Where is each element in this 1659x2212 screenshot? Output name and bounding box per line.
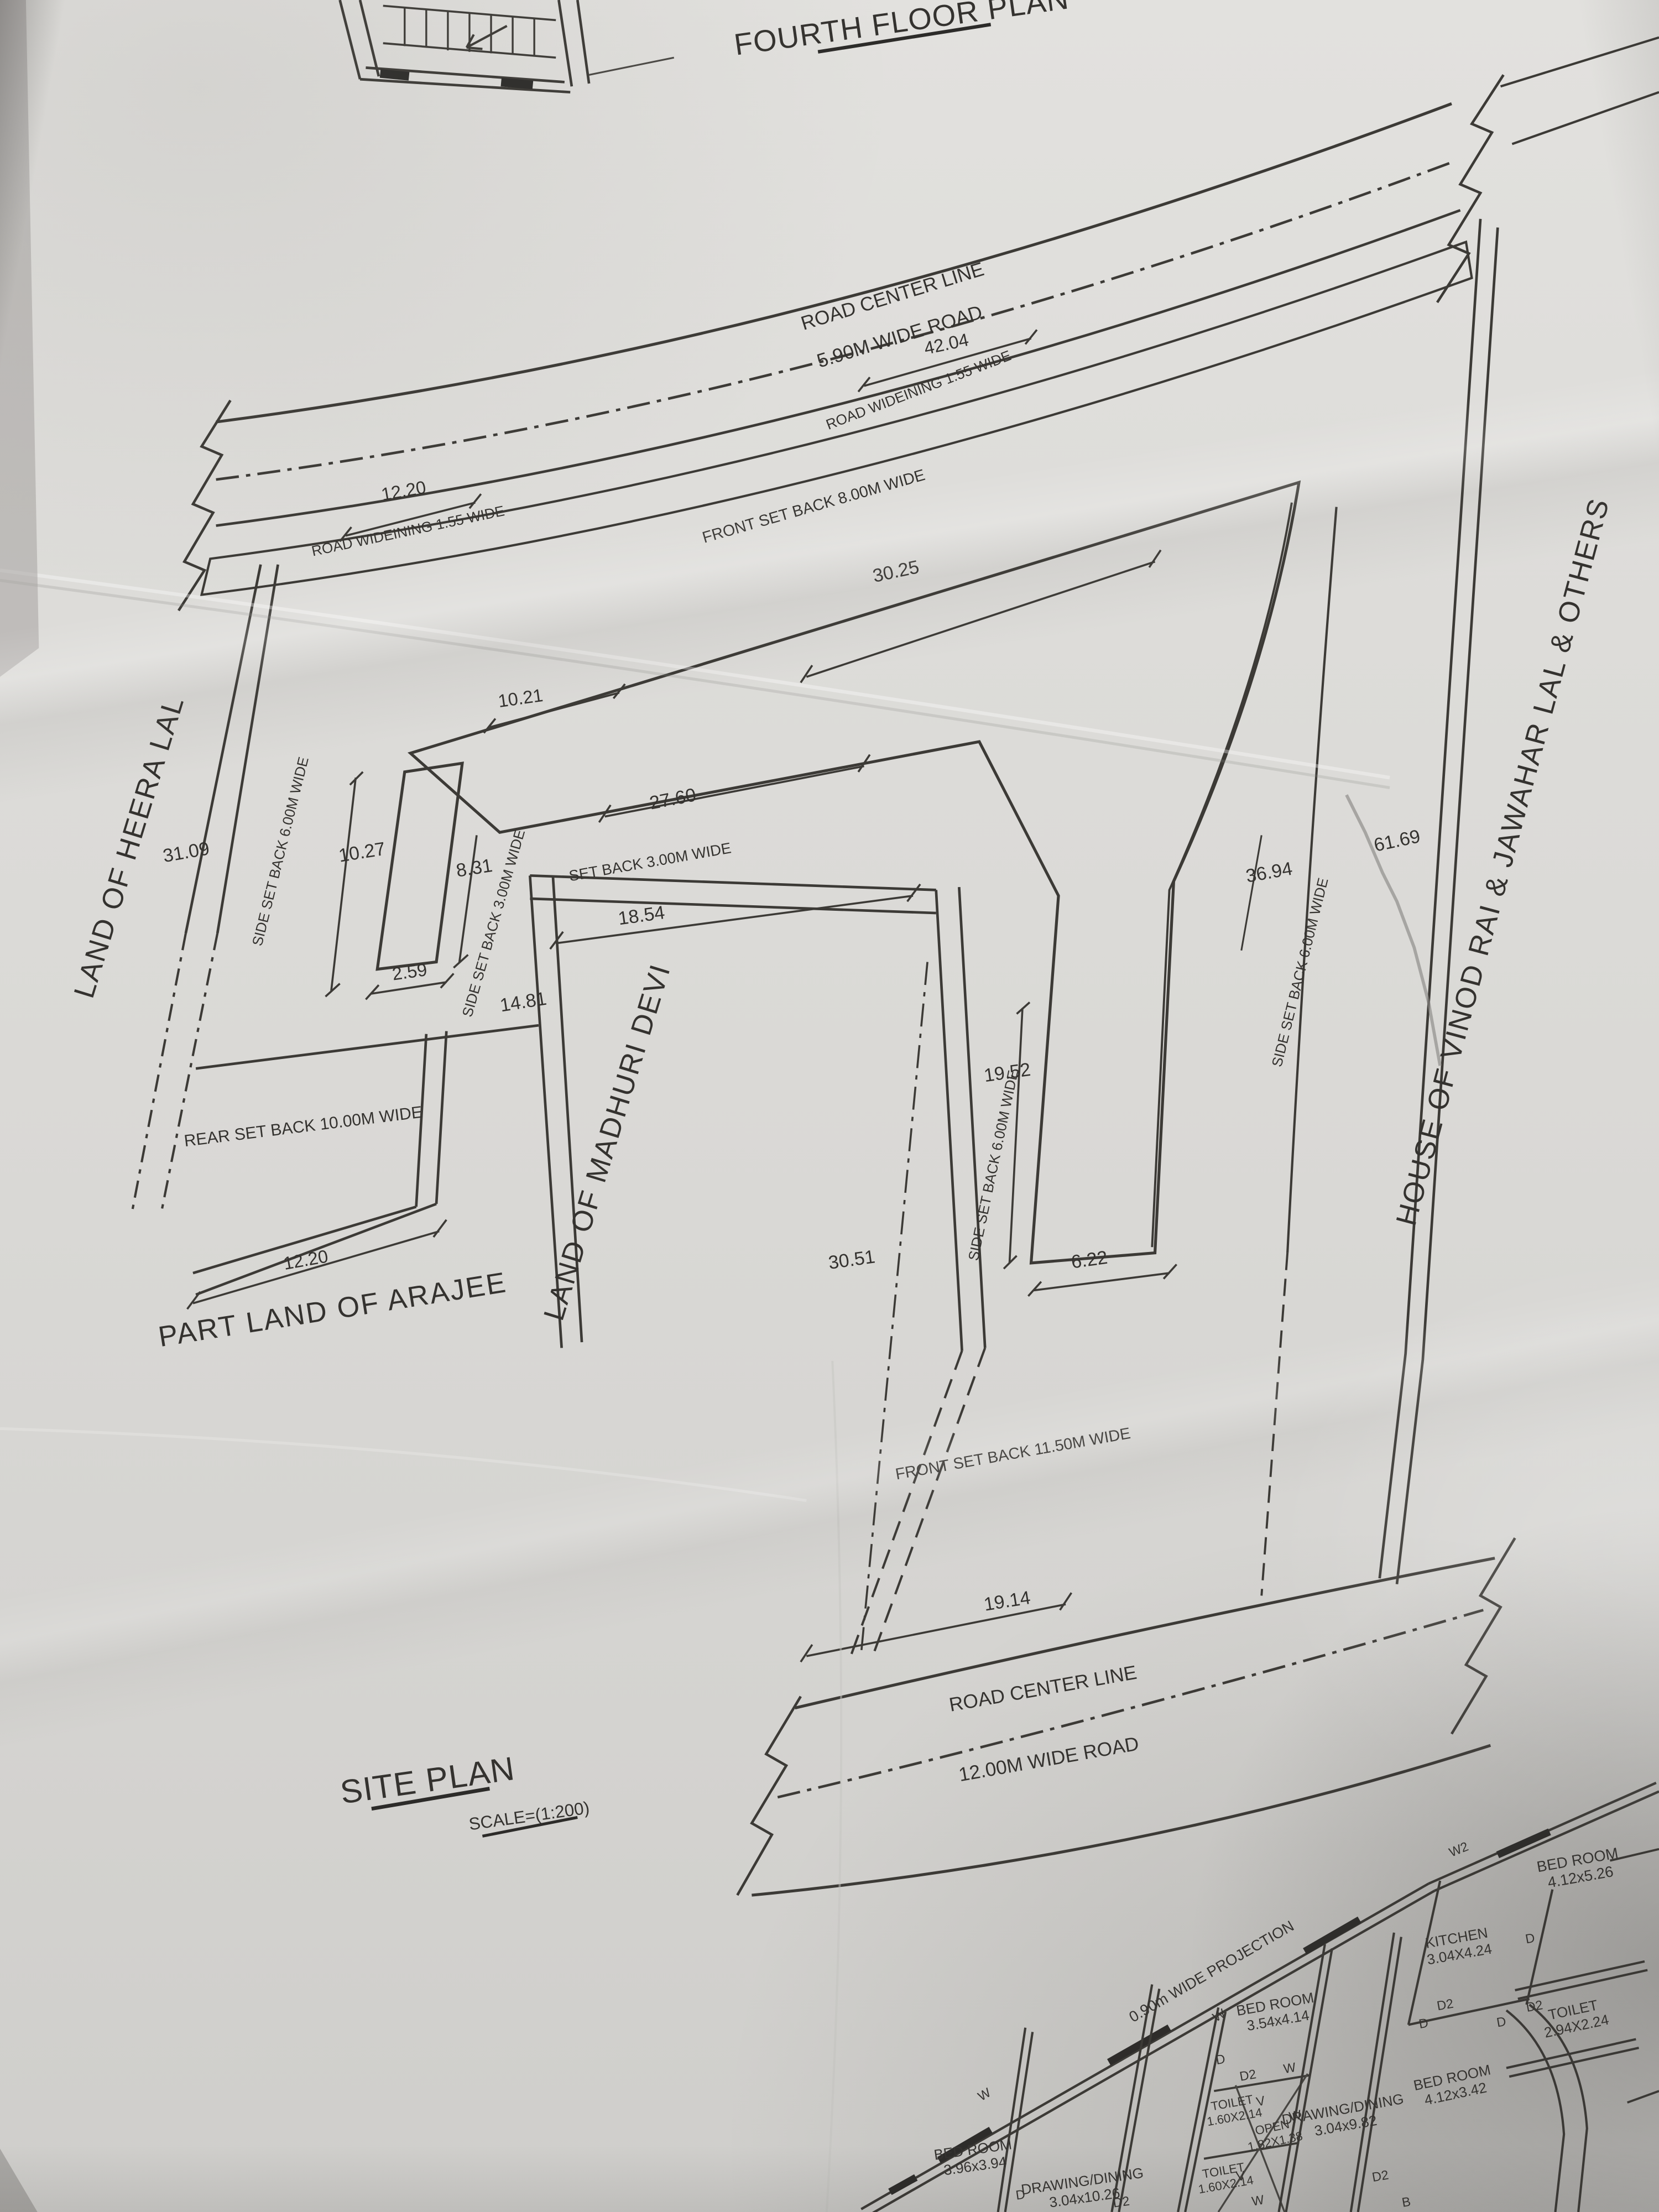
room-kitchen: KITCHEN 3.04X4.24	[1423, 1924, 1493, 1968]
marker-b: B	[1401, 2194, 1412, 2210]
ground-floor-fragment: 0.90m WIDE PROJECTION BED ROOM 4.12x5.26…	[861, 1783, 1659, 2212]
dim-61-69: 61.69	[1372, 826, 1422, 856]
marker-d: D	[1418, 2016, 1430, 2032]
house-of-vinod-rai-label: HOUSE OF VINOD RAI & JAWAHAR LAL & OTHER…	[1390, 494, 1616, 1229]
site-plan-title: SITE PLAN	[338, 1750, 517, 1811]
dim-8-31: 8.31	[455, 855, 494, 881]
marker-w: W	[1282, 2060, 1297, 2077]
room-bedroom-4-12x3-42: BED ROOM 4.12x3.42	[1412, 2061, 1495, 2110]
setback-side-left-label: SIDE SET BACK 6.00M WIDE	[249, 755, 312, 948]
fourth-floor-title: FOURTH FLOOR PLAN	[732, 0, 1071, 62]
marker-w2: W2	[1447, 1839, 1470, 1860]
road-widening-label-left: ROAD WIDEINING 1.55 WIDE	[310, 502, 506, 559]
plot-outline: FRONT SET BACK 8.00M WIDE 30.25 10.21 27…	[326, 466, 1299, 1296]
marker-d2: D2	[1371, 2167, 1390, 2184]
room-toilet-1-60-a: TOILET 1.60X2.14	[1203, 2091, 1263, 2128]
dim-12-20-top: 12.20	[380, 477, 427, 505]
marker-d2: D2	[1112, 2194, 1130, 2210]
upper-road: ROAD CENTER LINE 5.90M WIDE ROAD 42.04 R…	[179, 38, 1659, 611]
setback-rear-label: REAR SET BACK 10.00M WIDE	[183, 1103, 423, 1151]
marker-d: D	[1524, 1931, 1536, 1947]
setback-side-left-3m-label: SIDE SET BACK 3.00M WIDE	[459, 828, 529, 1019]
site-plan-drawing: FOURTH FLOOR PLAN ROAD CENTER LINE 5.90M…	[0, 0, 1659, 2212]
room-toilet-2-94: TOILET 2.94X2.24	[1539, 1995, 1610, 2041]
marker-d: D	[1214, 2052, 1226, 2068]
scale-label: SCALE=(1:200)	[468, 1798, 591, 1834]
paper-creases	[0, 0, 1440, 2212]
lower-road: 19.14 FRONT SET BACK 11.50M WIDE ROAD CE…	[737, 1425, 1515, 1895]
paper-sheet: FOURTH FLOOR PLAN ROAD CENTER LINE 5.90M…	[0, 0, 1659, 2212]
dim-36-94: 36.94	[1244, 858, 1294, 887]
marker-d2: D2	[1436, 1996, 1454, 2013]
dim-10-27: 10.27	[337, 838, 387, 867]
room-bedroom-4-12x5-26: BED ROOM 4.12x5.26	[1536, 1844, 1623, 1892]
lower-road-center-line-label: ROAD CENTER LINE	[947, 1662, 1138, 1716]
setback-side-middle-label: SIDE SET BACK 6.00M WIDE	[965, 1069, 1021, 1262]
fourth-floor-title-group: FOURTH FLOOR PLAN	[732, 0, 1071, 62]
courtyard: SET BACK 3.00M WIDE 18.54 14.81 LAND OF …	[498, 839, 1021, 1659]
setback-front-lower-label: FRONT SET BACK 11.50M WIDE	[894, 1425, 1132, 1483]
left-boundary: 31.09 LAND OF HEERA LAL SIDE SET BACK 6.…	[68, 565, 312, 1213]
sheet-edge-bottom-left	[0, 2148, 38, 2212]
sheet-edge-top-left	[0, 0, 39, 677]
right-boundary: 36.94 61.69 SIDE SET BACK 6.00M WIDE HOU…	[1241, 219, 1616, 1596]
lower-road-width-label: 12.00M WIDE ROAD	[957, 1733, 1141, 1786]
dim-30-51: 30.51	[827, 1246, 877, 1273]
site-plan-title-group: SITE PLAN SCALE=(1:200)	[338, 1750, 591, 1836]
marker-d2: D2	[1238, 2067, 1257, 2084]
marker-d: D	[1495, 2014, 1507, 2030]
land-of-madhuri-devi-label: LAND OF MADHURI DEVI	[538, 960, 677, 1324]
dim-10-21: 10.21	[497, 685, 544, 711]
marker-w: W	[975, 2085, 994, 2104]
dim-2-59: 2.59	[391, 959, 429, 984]
marker-d: D	[1015, 2187, 1026, 2203]
dim-31-09: 31.09	[161, 838, 211, 867]
dim-6-22: 6.22	[1070, 1247, 1109, 1273]
stair-fragment	[340, 0, 674, 92]
dim-30-25: 30.25	[871, 556, 921, 587]
room-toilet-1-60-b: TOILET 1.60X2.14	[1194, 2159, 1254, 2197]
marker-w: W	[1251, 2192, 1266, 2209]
dim-19-14: 19.14	[982, 1587, 1032, 1615]
setback-inner-3m-label: SET BACK 3.00M WIDE	[567, 839, 732, 884]
dim-12-20-rear: 12.20	[282, 1246, 330, 1274]
dim-27-60: 27.60	[648, 784, 697, 813]
marker-d2: D2	[1525, 1997, 1544, 2015]
part-land-of-arajee-label: PART LAND OF ARAJEE	[156, 1266, 509, 1353]
dim-18-54: 18.54	[617, 902, 666, 929]
dim-14-81: 14.81	[498, 988, 548, 1016]
room-bedroom-3-54: BED ROOM 3.54x4.14	[1235, 1989, 1318, 2036]
rear-parcel: REAR SET BACK 10.00M WIDE 12.20 PART LAN…	[156, 1025, 539, 1353]
